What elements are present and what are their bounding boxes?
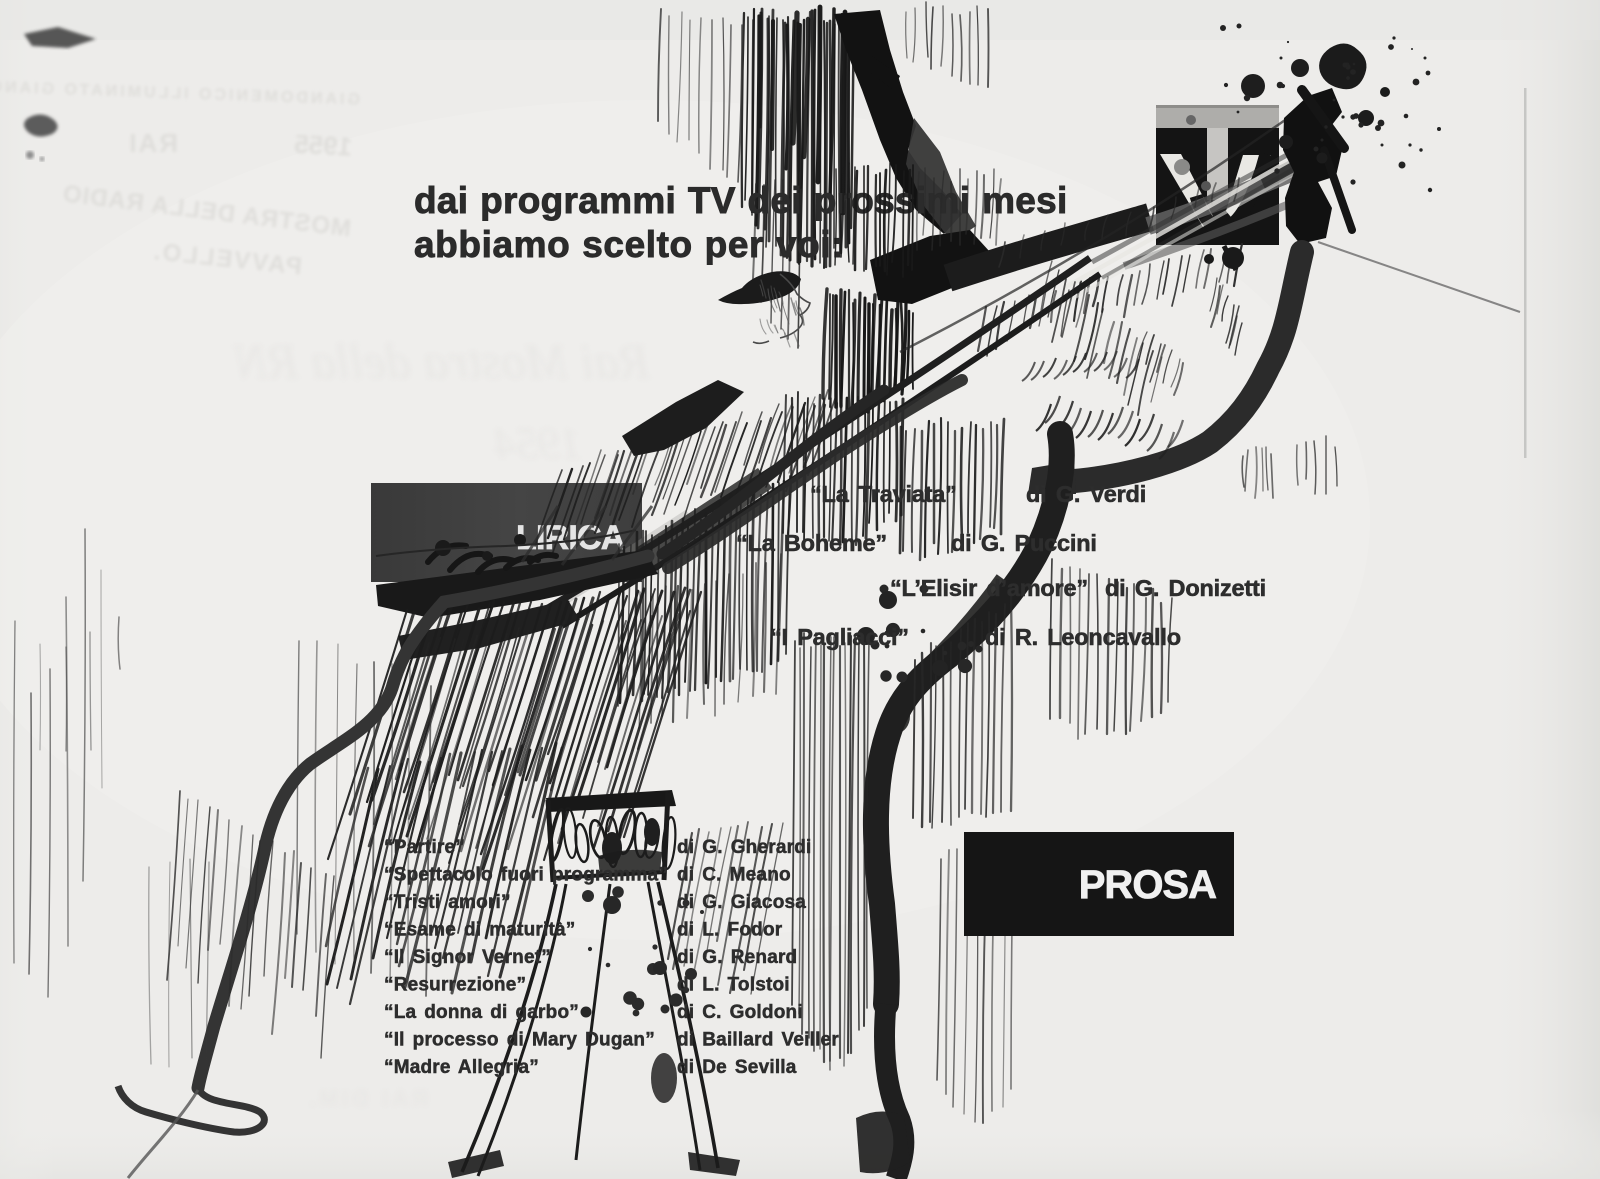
svg-text:dai programmi TV dei prossimi: dai programmi TV dei prossimi mesi <box>414 180 1068 221</box>
svg-text:RAI DIM.: RAI DIM. <box>306 1086 428 1111</box>
svg-text:“Madre Allegria”: “Madre Allegria” <box>384 1057 539 1078</box>
svg-text:“Il processo di Mary Dugan”: “Il processo di Mary Dugan” <box>384 1030 655 1051</box>
svg-text:di G. Renard: di G. Renard <box>677 947 797 968</box>
svg-text:“Partire”: “Partire” <box>384 837 465 858</box>
svg-text:“Il Signor Vernet”: “Il Signor Vernet” <box>384 947 551 968</box>
svg-text:di G. Verdi: di G. Verdi <box>1026 481 1146 507</box>
svg-text:di De Sevilla: di De Sevilla <box>677 1057 797 1078</box>
svg-text:“La Boheme”: “La Boheme” <box>736 530 887 556</box>
svg-text:1955: 1955 <box>294 129 353 162</box>
svg-text:Rai Mostra della RN: Rai Mostra della RN <box>232 333 651 389</box>
svg-text:“La donna di garbo”: “La donna di garbo” <box>384 1002 579 1023</box>
svg-text:di C. Meano: di C. Meano <box>677 865 791 886</box>
svg-text:di G. Puccini: di G. Puccini <box>951 530 1097 556</box>
svg-text:“L’Elisir d’amore”: “L’Elisir d’amore” <box>890 575 1088 601</box>
svg-text:di L. Fodor: di L. Fodor <box>677 920 783 941</box>
svg-text:RAI: RAI <box>127 128 178 158</box>
svg-text:“Tristi amori”: “Tristi amori” <box>384 892 511 913</box>
svg-text:di L. Tolstoi: di L. Tolstoi <box>677 975 790 996</box>
svg-text:di G. Giacosa: di G. Giacosa <box>677 892 806 913</box>
svg-text:1954: 1954 <box>494 419 582 468</box>
svg-text:PROSA: PROSA <box>1079 863 1216 907</box>
svg-text:“Spettacolo fuori programma”: “Spettacolo fuori programma” <box>384 865 668 886</box>
svg-text:di G. Gherardi: di G. Gherardi <box>677 837 812 858</box>
svg-text:di C. Goldoni: di C. Goldoni <box>677 1002 803 1023</box>
svg-text:“Resurrezione”: “Resurrezione” <box>384 975 526 996</box>
svg-text:“La Traviata”: “La Traviata” <box>810 481 957 507</box>
svg-text:“I Pagliacci”: “I Pagliacci” <box>770 624 909 650</box>
svg-text:“Esame di maturità”: “Esame di maturità” <box>384 920 575 941</box>
svg-text:abbiamo scelto per voi:: abbiamo scelto per voi: <box>414 224 844 265</box>
svg-text:di R. Leoncavallo: di R. Leoncavallo <box>985 624 1181 650</box>
svg-text:di G. Donizetti: di G. Donizetti <box>1105 575 1266 601</box>
svg-text:di Baillard Veiller: di Baillard Veiller <box>677 1030 839 1051</box>
